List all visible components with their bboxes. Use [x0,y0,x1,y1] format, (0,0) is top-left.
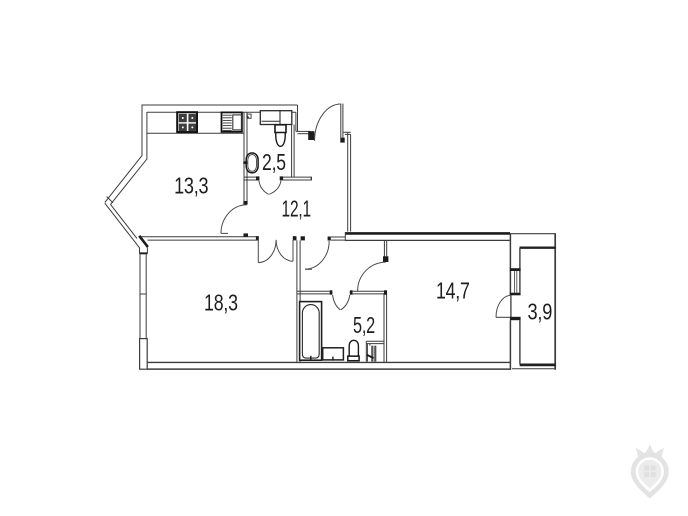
svg-text:2,5: 2,5 [262,149,286,175]
svg-text:3,9: 3,9 [528,299,553,325]
svg-text:18,3: 18,3 [204,290,238,316]
svg-text:14,7: 14,7 [436,278,470,304]
svg-text:12,1: 12,1 [282,196,311,222]
svg-text:5,2: 5,2 [353,312,375,338]
svg-text:13,3: 13,3 [174,172,208,198]
